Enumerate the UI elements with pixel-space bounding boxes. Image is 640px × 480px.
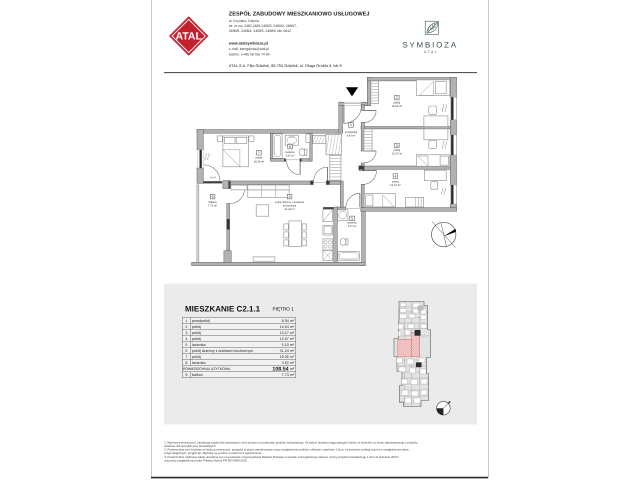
svg-text:3: 3	[185, 331, 187, 335]
svg-text:6: 6	[185, 349, 187, 353]
svg-text:8.94 m²: 8.94 m²	[282, 319, 295, 323]
svg-text:7: 7	[258, 151, 260, 155]
svg-text:2480/8, 2468/4, 2468/5, 2468/6: 2480/8, 2468/4, 2468/5, 2468/6 obr. 0012	[229, 29, 291, 33]
svg-text:5: 5	[351, 217, 353, 221]
svg-text:ZESPÓŁ ZABUDOWY MIESZKANIOWO U: ZESPÓŁ ZABUDOWY MIESZKANIOWO USŁUGOWEJ	[229, 11, 370, 18]
svg-text:1: 1	[350, 123, 352, 127]
svg-text:telefon: (+48) 58 766 74 04: telefon: (+48) 58 766 74 04	[229, 52, 270, 56]
svg-text:POWIERZCHNIA UŻYTKOWA: POWIERZCHNIA UŻYTKOWA	[183, 366, 231, 371]
svg-text:m²: m²	[290, 367, 295, 371]
svg-text:kuchennym: kuchennym	[283, 204, 296, 207]
svg-text:łazienka: łazienka	[192, 361, 206, 365]
svg-text:12.67 m²: 12.67 m²	[280, 337, 295, 341]
svg-text:3: 3	[396, 144, 398, 148]
svg-text:balkon: balkon	[209, 201, 217, 204]
svg-text:5.10 m²: 5.10 m²	[282, 343, 295, 347]
svg-text:pokój: pokój	[192, 325, 201, 329]
svg-text:pokój dzienny z aneksem kuchen: pokój dzienny z aneksem kuchennym	[192, 349, 253, 353]
svg-text:1: 1	[185, 319, 187, 323]
svg-text:balkon: balkon	[192, 373, 203, 377]
svg-text:MIESZKANIE C2.1.1: MIESZKANIE C2.1.1	[185, 305, 261, 314]
svg-text:9: 9	[185, 373, 187, 377]
svg-text:PIĘTRO 1: PIĘTRO 1	[273, 307, 295, 312]
svg-text:przedpokój: przedpokój	[345, 131, 358, 134]
svg-text:6: 6	[289, 195, 291, 199]
svg-text:7.73 m²: 7.73 m²	[282, 373, 295, 377]
svg-text:pokój: pokój	[192, 337, 201, 341]
svg-text:19.26 m²: 19.26 m²	[280, 355, 295, 359]
svg-text:pokój: pokój	[256, 157, 263, 160]
svg-text:e-mail: bsmgdynia@atal.pl: e-mail: bsmgdynia@atal.pl	[229, 47, 269, 51]
svg-text:2: 2	[396, 96, 398, 100]
svg-text:108.54: 108.54	[272, 367, 288, 373]
svg-text:3.62 m²: 3.62 m²	[286, 154, 295, 157]
svg-text:4: 4	[185, 337, 187, 341]
svg-text:19.26 m²: 19.26 m²	[254, 160, 265, 163]
svg-text:12.67 m²: 12.67 m²	[390, 184, 401, 187]
svg-text:7.73 m²: 7.73 m²	[208, 205, 217, 208]
svg-text:przedpokój: przedpokój	[192, 319, 210, 323]
svg-text:31.24 m²: 31.24 m²	[280, 349, 295, 353]
svg-text:8: 8	[185, 361, 187, 365]
svg-text:14.54 m²: 14.54 m²	[391, 105, 402, 108]
svg-text:pokój: pokój	[192, 355, 201, 359]
svg-text:ATAL: ATAL	[424, 50, 438, 54]
svg-text:SYMBIOZA: SYMBIOZA	[402, 40, 458, 49]
svg-text:dz. nr ew. 2482,2483,2480/5, 2: dz. nr ew. 2482,2483,2480/5, 2480/6, 248…	[229, 24, 297, 28]
svg-text:ul. Kcyńska, Gdynia: ul. Kcyńska, Gdynia	[229, 19, 259, 23]
svg-text:2: 2	[185, 325, 187, 329]
svg-text:13.17 m²: 13.17 m²	[280, 331, 295, 335]
svg-text:5: 5	[185, 343, 187, 347]
svg-text:8: 8	[289, 145, 291, 149]
svg-text:9: 9	[212, 195, 214, 199]
svg-text:14.54 m²: 14.54 m²	[280, 325, 295, 329]
svg-text:pokój: pokój	[392, 180, 399, 183]
svg-text:Agd=0: Agd=0	[210, 176, 217, 179]
svg-text:pokój: pokój	[192, 331, 201, 335]
svg-text:8.94 m²: 8.94 m²	[347, 135, 356, 138]
svg-text:www.atalsymbioza.pl: www.atalsymbioza.pl	[228, 41, 268, 46]
svg-text:31.24 m²: 31.24 m²	[284, 208, 294, 211]
svg-text:7: 7	[185, 355, 187, 359]
svg-text:łazienka: łazienka	[192, 343, 206, 347]
svg-text:ATAL: ATAL	[175, 31, 202, 43]
svg-text:13.17 m²: 13.17 m²	[391, 153, 402, 156]
svg-text:4: 4	[394, 174, 396, 178]
svg-text:3.62 m²: 3.62 m²	[282, 361, 295, 365]
svg-text:ATAL S.A. Filia Gdańsk, 80-754: ATAL S.A. Filia Gdańsk, 80-754 Gdańsk, u…	[229, 63, 342, 68]
svg-text:pokój: pokój	[394, 101, 401, 104]
svg-text:5.10 m²: 5.10 m²	[348, 225, 357, 228]
svg-text:oraz przy uwzględnieniu treści: oraz przy uwzględnieniu treści Polskiej …	[164, 458, 248, 462]
